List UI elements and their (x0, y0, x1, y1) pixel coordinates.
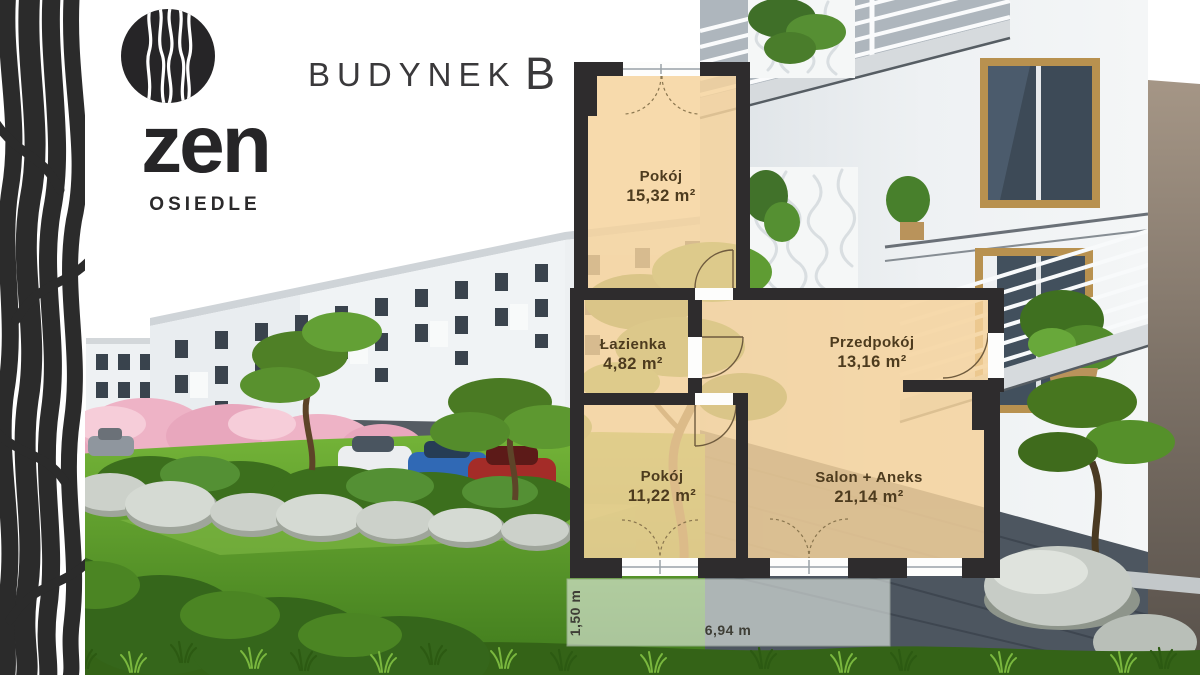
marketing-page: zen OSIEDLE BUDYNEK B Pokój 15,32 m² Łaz… (0, 0, 1200, 675)
logo-wordmark: zen (120, 106, 290, 184)
zen-pattern-strip (0, 0, 85, 675)
room-label-przedpokoj: Przedpokój 13,16 m² (830, 334, 915, 372)
building-title: BUDYNEK B (308, 48, 555, 100)
room-label-pokoj-1: Pokój 15,32 m² (626, 168, 695, 206)
room-label-lazienka: Łazienka 4,82 m² (600, 336, 667, 374)
logo-subtitle: OSIEDLE (120, 194, 290, 216)
building-title-label: BUDYNEK (308, 56, 517, 93)
zen-wave-circle-icon (157, 8, 253, 104)
terrace-width-label: 6,94 m (688, 622, 768, 638)
room-label-pokoj-2: Pokój 11,22 m² (628, 468, 696, 506)
terrace-depth-label: 1,50 m (567, 583, 583, 643)
building-title-letter: B (525, 48, 555, 99)
brand-logo: zen OSIEDLE (120, 8, 290, 216)
room-label-salon: Salon + Aneks 21,14 m² (815, 469, 923, 507)
